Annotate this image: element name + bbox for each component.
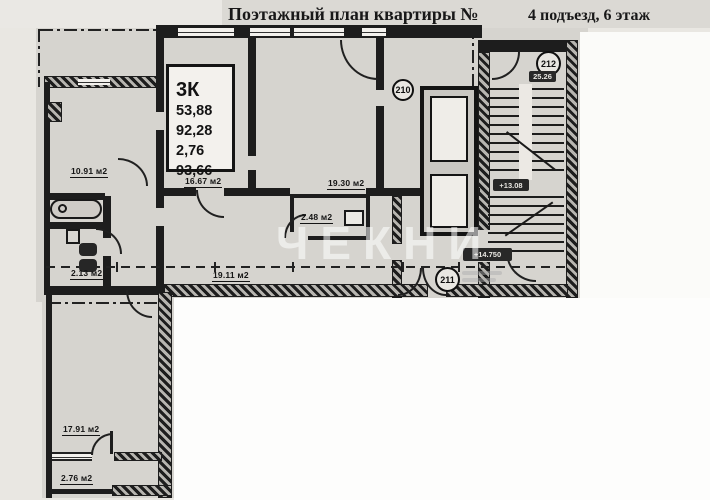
window [250,28,290,36]
wall [478,40,578,52]
wall [156,36,164,112]
window [294,28,344,36]
wall [156,130,164,208]
elevation-mark: 25.26 [529,71,556,82]
area-value: 92,28 [176,121,232,141]
room-area-label: 10.91 м2 [70,166,108,178]
window [52,452,92,461]
window [178,28,234,36]
wall [50,489,114,494]
stair-stringer [519,84,532,180]
wall [46,292,52,498]
boundary-line [38,29,40,87]
unit-number-210: 210 [392,79,414,101]
header-strip-left [0,0,222,28]
white-cover [174,298,710,500]
wall [248,170,256,190]
room-area-label: 16.67 м2 [184,176,222,188]
apartment-type: 3К [176,79,232,101]
boundary-line [40,29,158,31]
stairs [488,196,564,254]
wall [376,106,384,190]
entrance-floor-label: 4 подъезд, 6 этаж [528,7,650,25]
area-value: 2,76 [176,141,232,161]
wall [248,38,256,156]
elevation-mark: +13.08 [493,179,529,191]
hatched-wall [114,452,162,461]
window [362,28,386,36]
toilet-icon [79,243,97,256]
wall [103,256,111,286]
sink-icon [66,229,80,244]
area-value: 53,88 [176,101,232,121]
wing-paper [42,285,174,498]
bathtub-drain-icon [58,204,67,213]
hatched-wall [112,485,172,496]
wall [224,188,290,196]
plan-title: Поэтажный план квартиры № [228,4,478,25]
floor-plan-scan: Поэтажный план квартиры № 4 подъезд, 6 э… [0,0,710,500]
window [78,79,110,85]
wall [366,188,396,196]
hatched-wall [158,292,172,498]
room-area-label: 17.91 м2 [62,424,100,436]
vent-shaft [47,102,62,122]
watermark: ЧЕКНИ [276,216,493,270]
room-area-label: 2.76 м2 [60,473,93,485]
watermark-smudge [462,278,496,282]
wall [164,188,196,196]
axis-tick [116,262,118,272]
apartment-info-box: 3К 53,88 92,28 2,76 93,66 [166,64,235,172]
hatched-wall [164,284,428,297]
unit-number-211: 211 [435,267,460,292]
room-area-label: 19.30 м2 [327,178,365,190]
watermark-smudge [462,271,502,275]
room-area-label: 2.13 м2 [70,268,103,280]
hatched-wall [566,40,578,298]
hatched-wall [446,284,568,297]
room-area-label: 19.11 м2 [212,270,250,282]
wall [156,226,164,288]
elevator-car [430,96,468,162]
